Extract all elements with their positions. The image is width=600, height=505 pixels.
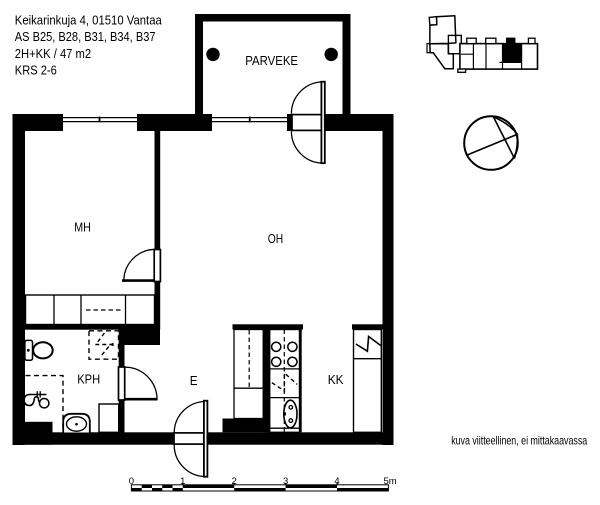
svg-text:3: 3 [283, 476, 288, 487]
svg-text:KPH: KPH [77, 371, 100, 386]
svg-text:Keikarinkuja 4, 01510 Vantaa: Keikarinkuja 4, 01510 Vantaa [15, 12, 163, 27]
svg-text:AS B25, B28, B31, B34, B37: AS B25, B28, B31, B34, B37 [15, 29, 156, 44]
svg-text:MH: MH [74, 219, 91, 234]
svg-text:1: 1 [180, 476, 185, 487]
svg-text:kuva viitteellinen, ei mittaka: kuva viitteellinen, ei mittakaavassa [451, 434, 587, 448]
svg-text:4: 4 [334, 476, 339, 487]
svg-text:KK: KK [328, 372, 344, 387]
svg-text:KRS 2-6: KRS 2-6 [15, 63, 57, 78]
svg-text:2: 2 [232, 476, 237, 487]
svg-text:0: 0 [129, 476, 134, 487]
svg-text:OH: OH [268, 231, 283, 246]
svg-text:5m: 5m [384, 476, 397, 487]
svg-text:2H+KK / 47 m2: 2H+KK / 47 m2 [15, 46, 91, 61]
svg-text:E: E [190, 373, 198, 388]
svg-text:PARVEKE: PARVEKE [245, 53, 298, 68]
